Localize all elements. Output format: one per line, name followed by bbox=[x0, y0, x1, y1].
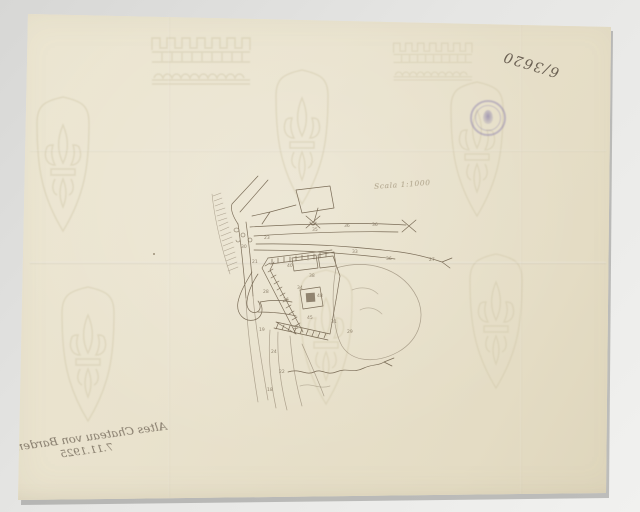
upper-plot-outline bbox=[252, 186, 334, 224]
svg-text:34: 34 bbox=[297, 285, 303, 291]
svg-text:29: 29 bbox=[347, 329, 353, 335]
svg-text:24: 24 bbox=[271, 349, 277, 355]
svg-text:31: 31 bbox=[331, 319, 337, 325]
svg-text:40: 40 bbox=[287, 263, 293, 269]
svg-text:26: 26 bbox=[283, 297, 289, 303]
wavy-stream-path bbox=[288, 358, 394, 373]
paper-sheet: 6/3620 Scala 1:1000 bbox=[0, 0, 640, 512]
watermark-crown-right bbox=[394, 43, 472, 80]
svg-text:27: 27 bbox=[429, 257, 435, 263]
svg-text:19: 19 bbox=[259, 327, 265, 333]
svg-text:23: 23 bbox=[264, 235, 270, 241]
svg-text:22: 22 bbox=[279, 369, 285, 375]
svg-text:18: 18 bbox=[267, 387, 273, 393]
svg-text:36: 36 bbox=[386, 256, 392, 262]
slope-hatching bbox=[212, 193, 238, 274]
scanned-document: 6/3620 Scala 1:1000 bbox=[0, 0, 640, 512]
svg-text:36: 36 bbox=[372, 222, 378, 228]
svg-text:35: 35 bbox=[312, 227, 318, 233]
junction-bush-scribbles bbox=[234, 228, 252, 242]
hill-inner-strokes bbox=[352, 288, 382, 314]
hill-contour bbox=[333, 264, 421, 359]
lower-paths bbox=[269, 330, 324, 410]
watermark-shield-top-left bbox=[37, 97, 89, 231]
svg-text:45: 45 bbox=[307, 315, 313, 321]
svg-text:33: 33 bbox=[352, 249, 358, 255]
svg-text:21: 21 bbox=[252, 259, 258, 265]
svg-text:52: 52 bbox=[293, 325, 299, 331]
site-plan-drawing: 3636353323302140383428482645315229361924… bbox=[195, 168, 457, 430]
paper-speck bbox=[153, 253, 155, 255]
svg-text:36: 36 bbox=[344, 223, 350, 229]
svg-text:38: 38 bbox=[309, 273, 315, 279]
castle-south-range bbox=[274, 300, 336, 340]
stamp-center-mark bbox=[483, 110, 493, 124]
svg-text:28: 28 bbox=[263, 289, 269, 295]
windmill-mark-right bbox=[402, 220, 416, 232]
watermark-crown-left bbox=[152, 38, 250, 84]
wavy-stream-lower bbox=[300, 385, 330, 387]
castle-west-wall bbox=[262, 258, 303, 334]
svg-text:30: 30 bbox=[241, 244, 247, 250]
castle-keep-solid bbox=[306, 293, 316, 303]
road-upper-horizontal bbox=[250, 224, 406, 236]
road-upper-left-diagonal bbox=[231, 176, 268, 224]
archive-stamp bbox=[470, 100, 506, 136]
watermark-shield-bottom-right bbox=[470, 254, 522, 388]
svg-text:48: 48 bbox=[317, 293, 323, 299]
watermark-shield-bottom-left bbox=[62, 287, 114, 421]
windmill-mark-left bbox=[306, 216, 320, 228]
